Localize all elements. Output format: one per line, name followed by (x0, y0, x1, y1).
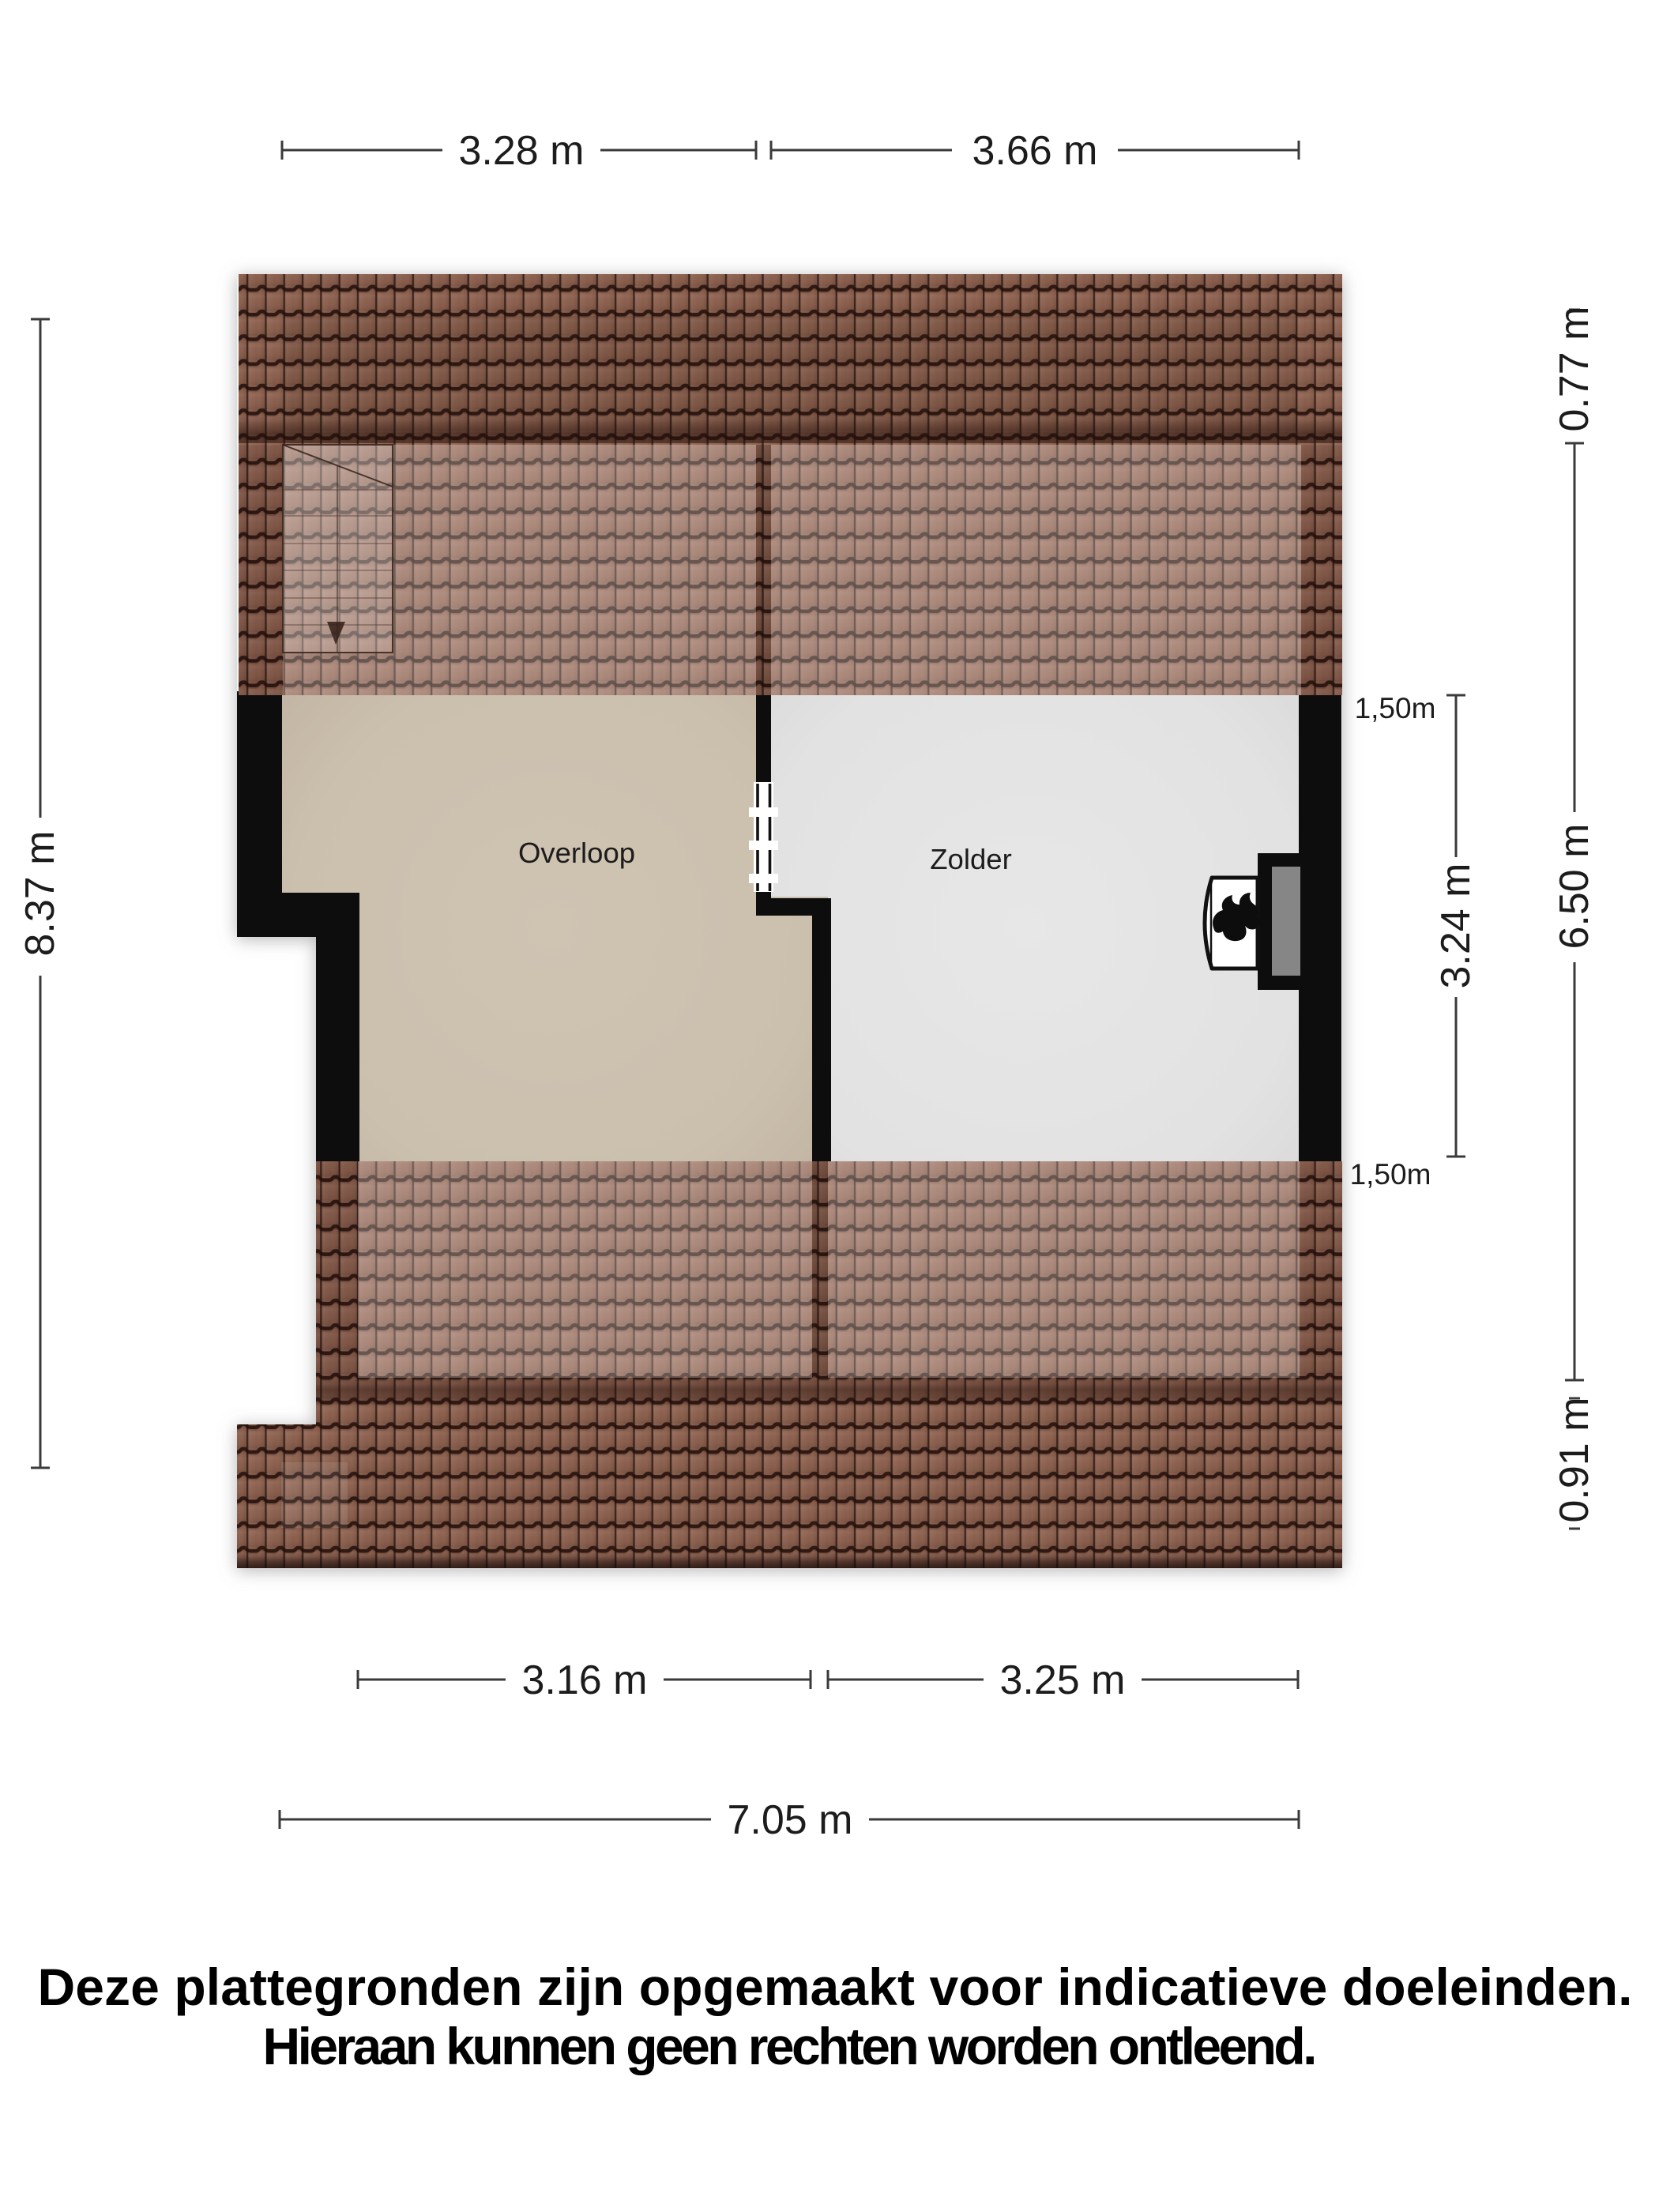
svg-text:Zolder: Zolder (930, 843, 1011, 875)
svg-text:6.50 m: 6.50 m (1552, 824, 1597, 950)
svg-text:0.91 m: 0.91 m (1552, 1398, 1597, 1523)
svg-text:3.25 m: 3.25 m (1000, 1657, 1126, 1703)
svg-text:3.16 m: 3.16 m (522, 1657, 648, 1703)
svg-text:1,50m: 1,50m (1355, 692, 1436, 724)
svg-text:3.24 m: 3.24 m (1433, 863, 1479, 989)
svg-text:0.77 m: 0.77 m (1552, 307, 1597, 432)
svg-text:3.28 m: 3.28 m (459, 128, 585, 174)
svg-text:8.37 m: 8.37 m (17, 831, 63, 957)
svg-text:Deze plattegronden zijn opgema: Deze plattegronden zijn opgemaakt voor i… (38, 1958, 1633, 2016)
svg-text:Overloop: Overloop (518, 837, 635, 869)
svg-text:7.05 m: 7.05 m (728, 1797, 853, 1843)
svg-text:1,50m: 1,50m (1350, 1158, 1431, 1191)
svg-text:Hieraan kunnen geen rechten wo: Hieraan kunnen geen rechten worden ontle… (263, 2017, 1318, 2075)
svg-text:3.66 m: 3.66 m (972, 128, 1098, 174)
